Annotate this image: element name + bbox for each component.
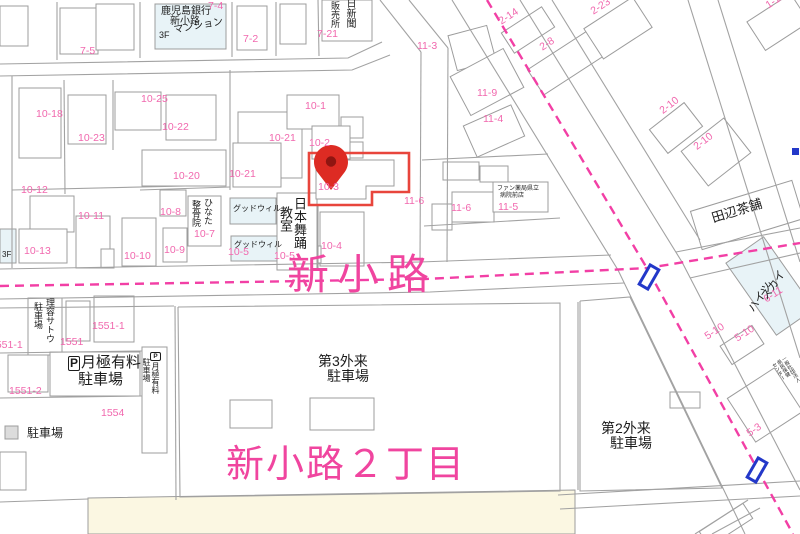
- building: [237, 6, 267, 50]
- building: [101, 249, 114, 268]
- building: [19, 229, 67, 263]
- building: [68, 95, 106, 144]
- building: [493, 182, 548, 212]
- map-symbol-icon: [792, 148, 799, 155]
- building: [166, 95, 216, 140]
- building: [452, 192, 494, 222]
- road-parcel-line: [560, 496, 800, 509]
- road-parcel-line: [318, 0, 319, 56]
- building: [142, 150, 226, 186]
- building: [5, 426, 18, 439]
- building: [142, 347, 167, 453]
- building: [60, 8, 98, 54]
- building: [155, 4, 226, 49]
- building: [8, 355, 48, 392]
- road-dashed-centerline: [0, 243, 800, 286]
- building: [0, 6, 28, 46]
- building: [163, 228, 187, 262]
- building: [443, 162, 479, 180]
- bus-stop-icon: [747, 458, 767, 482]
- building: [19, 88, 61, 158]
- building: [230, 400, 272, 428]
- building: [432, 204, 452, 230]
- building: [160, 190, 186, 216]
- road-parcel-line: [175, 306, 176, 500]
- building: [115, 92, 161, 130]
- building: [233, 143, 281, 187]
- building: [188, 196, 221, 246]
- road-parcel-line: [422, 154, 548, 160]
- building: [747, 0, 800, 50]
- building: [96, 4, 134, 50]
- road-parcel-line: [0, 499, 88, 502]
- building: [0, 452, 26, 490]
- building: [88, 490, 575, 534]
- map-geometry: [0, 0, 800, 534]
- building: [30, 196, 74, 232]
- building: [727, 368, 800, 442]
- building: [231, 236, 278, 261]
- road-parcel-line: [420, 52, 421, 263]
- building: [122, 218, 156, 266]
- building: [726, 237, 800, 335]
- road-parcel-line: [580, 297, 722, 491]
- building: [322, 0, 372, 41]
- building: [94, 296, 134, 342]
- building: [350, 142, 363, 158]
- building: [287, 95, 339, 129]
- map-canvas[interactable]: 7-57-47-27-2111-311-911-410-1810-2510-23…: [0, 0, 800, 534]
- building: [690, 180, 800, 249]
- building: [480, 166, 508, 182]
- building: [320, 212, 364, 266]
- building: [720, 325, 764, 364]
- building: [50, 352, 140, 396]
- building: [0, 229, 16, 263]
- building: [699, 503, 752, 534]
- road-parcel-line: [64, 80, 65, 194]
- building: [28, 298, 62, 355]
- building: [280, 4, 306, 44]
- building: [230, 198, 276, 224]
- building: [670, 392, 700, 408]
- road-parcel-line: [409, 0, 448, 48]
- building: [310, 398, 374, 430]
